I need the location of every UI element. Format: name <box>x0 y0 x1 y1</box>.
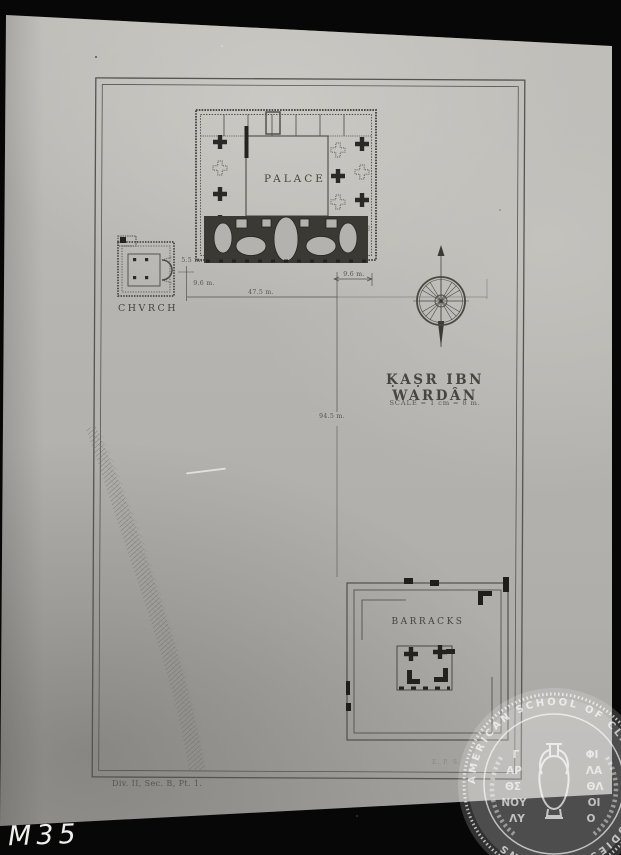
seal-greek: ΛΑ <box>586 765 603 777</box>
seal-greek: Γ <box>513 749 520 761</box>
ascsa-seal-watermark: AMERICAN SCHOOL OF CLASSICAL STUDIES AT … <box>452 686 621 855</box>
dust-specks <box>95 45 501 817</box>
barracks-label: BARRACKS <box>383 617 473 627</box>
dim-palace-south-front: 47.5 m. <box>240 289 282 296</box>
seal-greek: ΛΥ <box>509 813 525 825</box>
wadi-hatching <box>86 425 206 772</box>
north-compass-icon <box>413 245 469 347</box>
seal-greek: ΘΣ <box>505 781 521 793</box>
seal-greek: ΦΙ <box>586 749 599 761</box>
seal-greek: ΟΙ <box>588 797 601 809</box>
dim-church-to-palace: 5.5 m. <box>172 257 212 264</box>
photographic-plate: ḲAṢR IBN WARDÂN SCALE = 1 cm = 8 m. PALA… <box>0 0 621 855</box>
scale-note: SCALE = 1 cm = 8 m. <box>349 399 521 407</box>
palace-label: PALACE <box>250 173 340 185</box>
plate-reference: Div. II, Sec. B, Pt. 1. <box>112 779 202 788</box>
palace-plan <box>196 110 376 263</box>
seal-greek: Ο <box>587 813 596 825</box>
palace-south-range <box>204 216 368 263</box>
seal-greek: ΝΟΥ <box>501 797 527 809</box>
church-label: CHVRCH <box>108 303 188 314</box>
seal-greek: ΑΡ <box>506 765 522 777</box>
dim-southeast-offset: 9.6 m. <box>336 271 372 278</box>
seal-greek: ΘΛ <box>586 781 604 793</box>
church-plan <box>118 236 174 296</box>
dim-palace-to-barracks: 94.5 m. <box>310 413 354 420</box>
dim-southwest-offset: 9.6 m. <box>184 280 224 287</box>
handwritten-plate-number: M35 <box>7 819 81 853</box>
